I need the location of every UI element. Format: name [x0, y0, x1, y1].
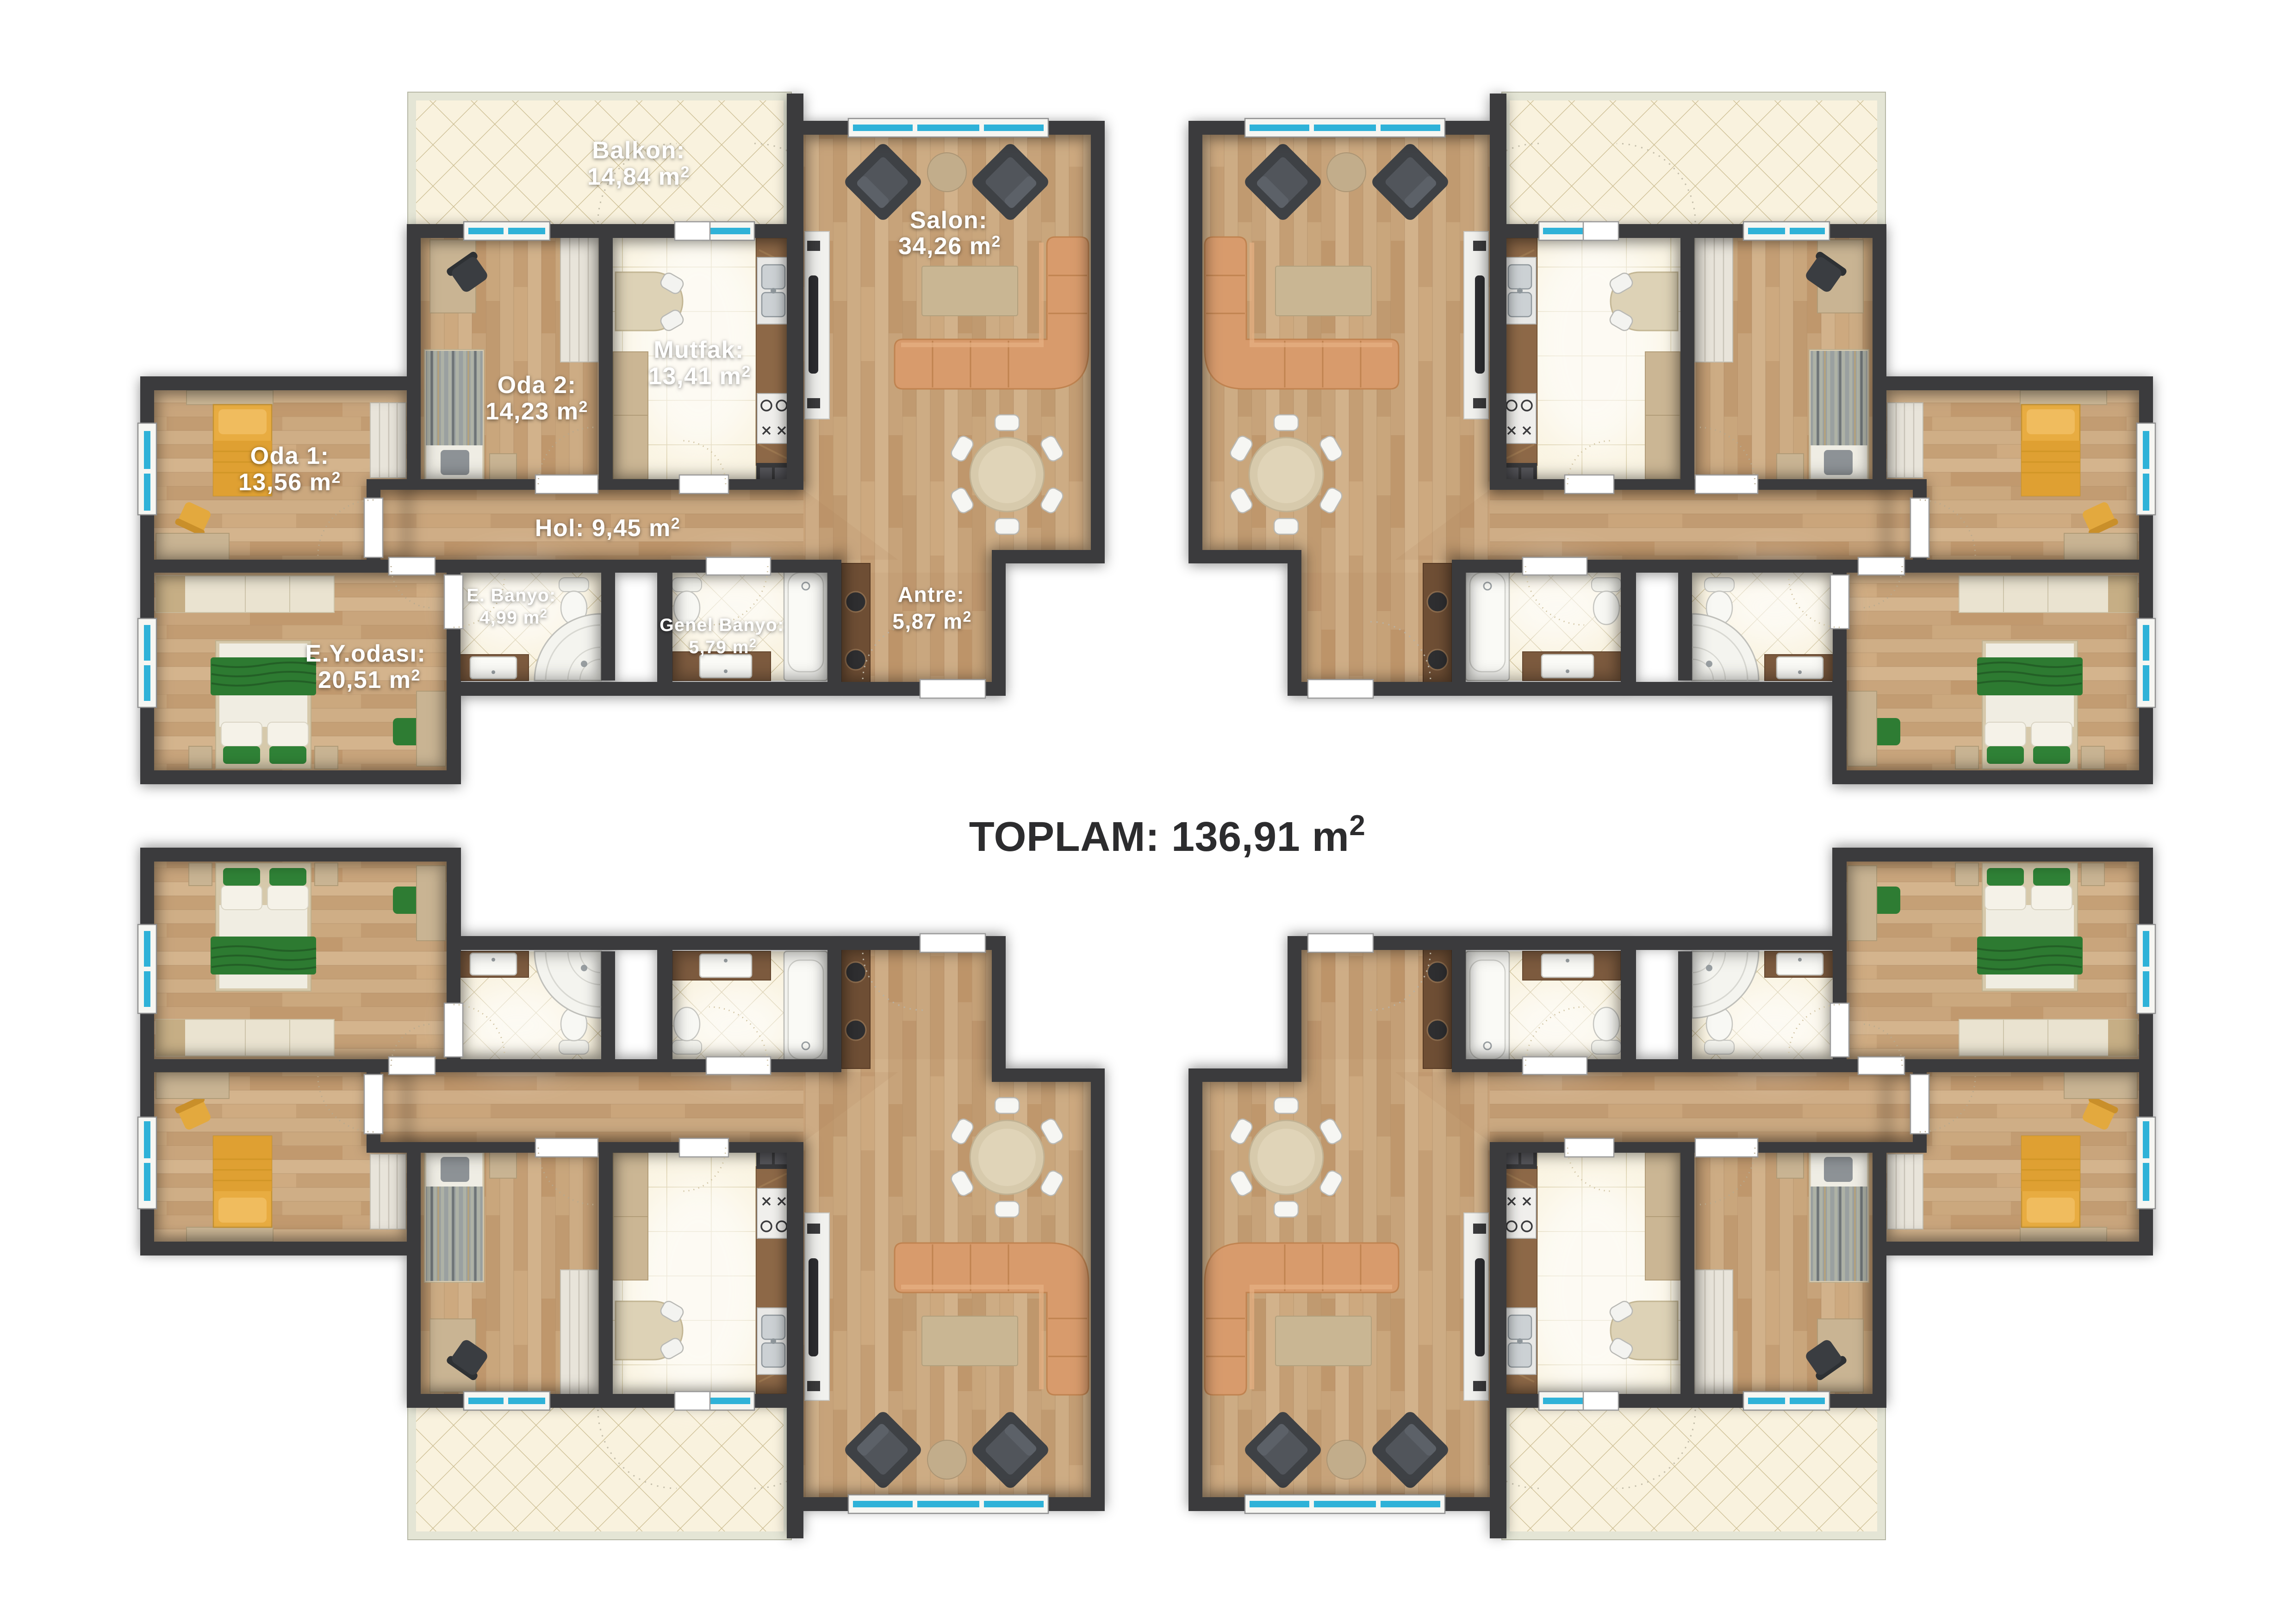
- svg-text:Oda 1:: Oda 1:: [250, 443, 330, 469]
- svg-text:4,99 m2: 4,99 m2: [480, 606, 548, 628]
- svg-text:Genel Banyo:: Genel Banyo:: [660, 615, 784, 635]
- svg-text:5,79 m2: 5,79 m2: [689, 636, 757, 657]
- svg-text:Balkon:: Balkon:: [592, 137, 685, 164]
- svg-text:E. Banyo:: E. Banyo:: [467, 586, 556, 606]
- svg-text:Oda 2:: Oda 2:: [498, 372, 577, 399]
- svg-text:Hol: 9,45 m2: Hol: 9,45 m2: [535, 515, 680, 542]
- svg-text:Mutfak:: Mutfak:: [653, 337, 744, 363]
- svg-text:34,26 m2: 34,26 m2: [898, 233, 1001, 260]
- svg-text:5,87 m2: 5,87 m2: [892, 608, 972, 633]
- svg-text:13,41 m2: 13,41 m2: [648, 363, 751, 390]
- svg-text:Salon:: Salon:: [910, 207, 988, 234]
- svg-text:20,51 m2: 20,51 m2: [318, 667, 421, 693]
- svg-text:13,56 m2: 13,56 m2: [238, 469, 341, 496]
- svg-text:E.Y.odası:: E.Y.odası:: [305, 640, 426, 667]
- svg-text:14,84 m2: 14,84 m2: [587, 163, 690, 190]
- svg-text:14,23 m2: 14,23 m2: [485, 398, 588, 425]
- svg-text:TOPLAM: 136,91 m2: TOPLAM: 136,91 m2: [969, 810, 1366, 860]
- svg-text:Antre:: Antre:: [898, 582, 964, 606]
